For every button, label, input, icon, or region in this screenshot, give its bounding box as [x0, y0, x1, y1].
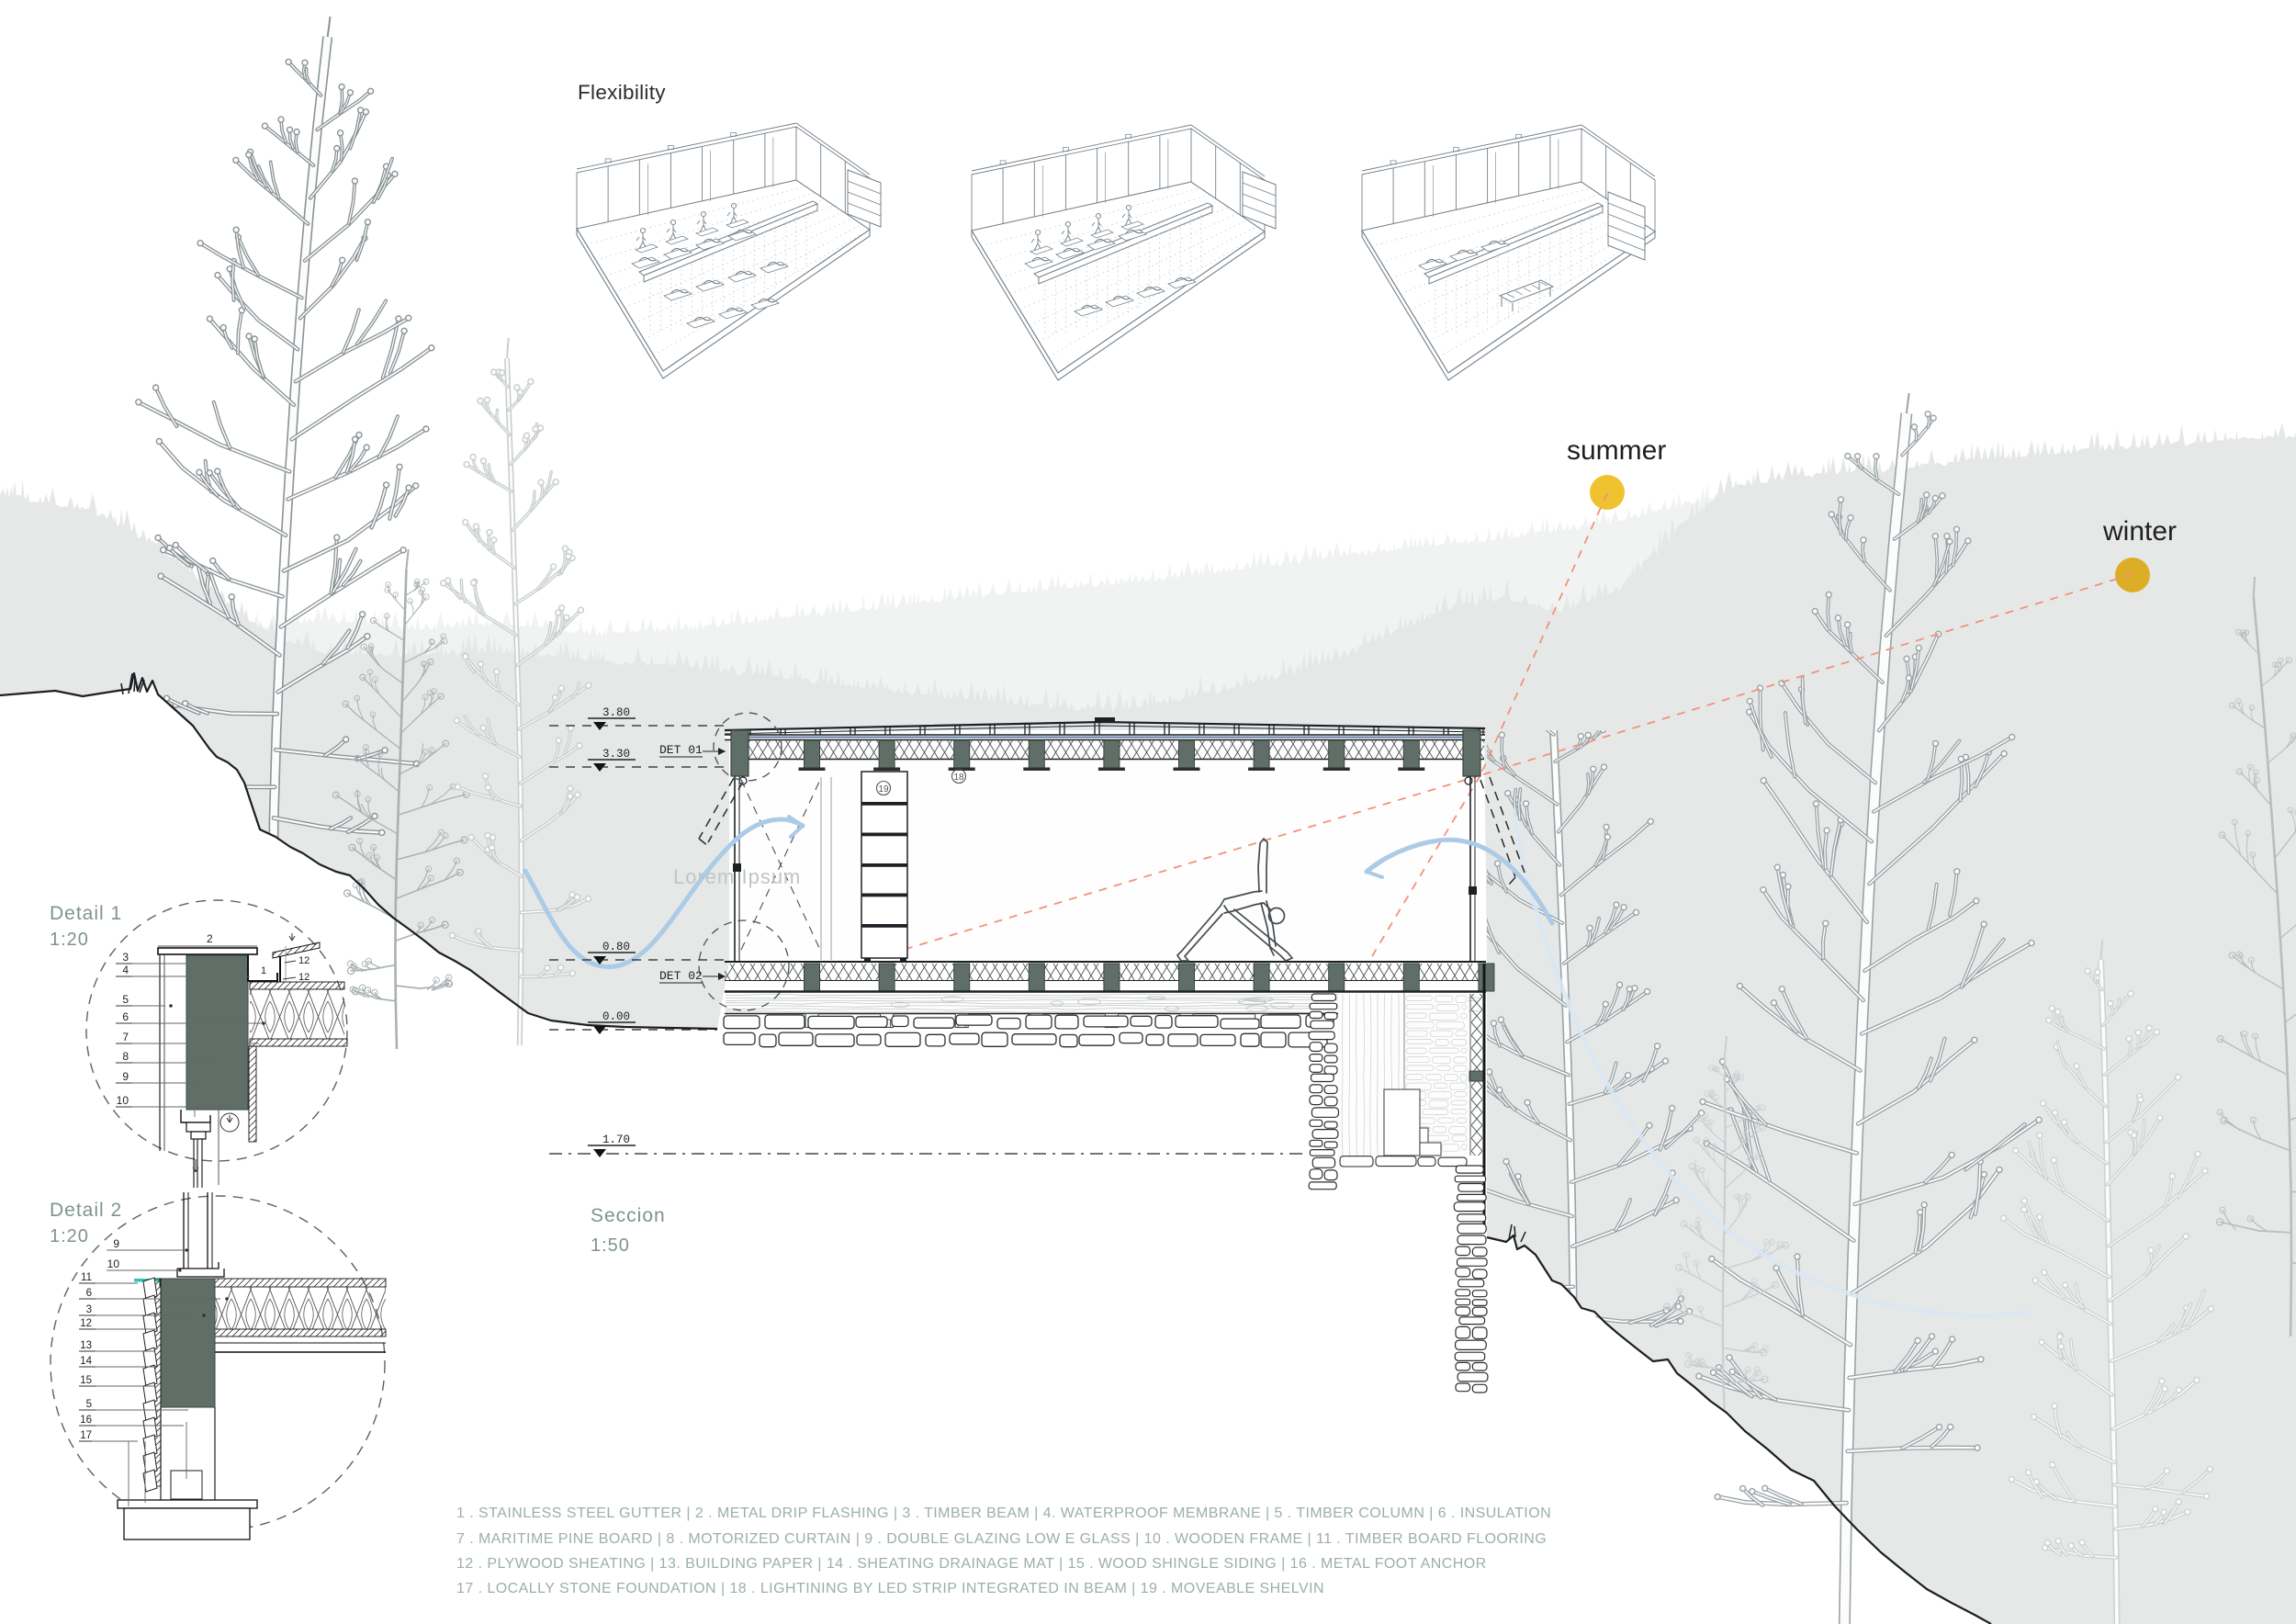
svg-text:5: 5 [86, 1399, 92, 1410]
svg-text:summer: summer [1567, 435, 1666, 466]
svg-text:12: 12 [298, 955, 310, 966]
svg-text:Flexibility: Flexibility [578, 81, 666, 104]
svg-text:Detail 2: Detail 2 [50, 1200, 122, 1221]
svg-text:0.00: 0.00 [602, 1010, 630, 1023]
svg-text:1 . STAINLESS STEEL GUTTER |: 1 . STAINLESS STEEL GUTTER | 2 . METAL D… [456, 1506, 1551, 1521]
svg-text:3.30: 3.30 [602, 748, 630, 761]
svg-text:10: 10 [117, 1094, 129, 1107]
svg-text:6: 6 [86, 1288, 92, 1299]
svg-text:3.80: 3.80 [602, 706, 630, 719]
svg-text:0.80: 0.80 [602, 941, 630, 953]
svg-text:13: 13 [80, 1340, 92, 1351]
svg-text:1:50: 1:50 [591, 1235, 630, 1256]
svg-text:19: 19 [878, 784, 889, 795]
svg-text:DET 01: DET 01 [659, 743, 703, 757]
svg-text:7: 7 [122, 1031, 129, 1043]
svg-text:12: 12 [80, 1318, 92, 1329]
svg-text:6: 6 [122, 1010, 129, 1023]
svg-text:3: 3 [122, 951, 129, 964]
svg-text:7 . MARITIME PINE BOARD | 8: 7 . MARITIME PINE BOARD | 8 . MOTORIZED … [456, 1531, 1547, 1547]
svg-text:14: 14 [80, 1356, 92, 1367]
svg-text:Lorem Ipsum: Lorem Ipsum [673, 865, 801, 888]
svg-text:winter: winter [2102, 516, 2177, 547]
svg-text:1:20: 1:20 [50, 1226, 89, 1246]
svg-text:1.70: 1.70 [602, 1133, 630, 1146]
svg-text:1:20: 1:20 [50, 930, 89, 950]
svg-text:5: 5 [122, 993, 129, 1006]
svg-text:Detail 1: Detail 1 [50, 903, 122, 924]
svg-text:2: 2 [207, 932, 213, 945]
svg-text:17 . LOCALLY STONE FOUNDATION: 17 . LOCALLY STONE FOUNDATION | 18 . LIG… [456, 1581, 1324, 1596]
svg-text:12: 12 [298, 972, 310, 983]
svg-text:DET 02: DET 02 [659, 969, 703, 983]
svg-text:3: 3 [86, 1304, 92, 1315]
svg-text:9: 9 [122, 1070, 129, 1083]
svg-text:11: 11 [81, 1272, 92, 1283]
svg-text:4: 4 [122, 964, 129, 976]
svg-text:18: 18 [953, 773, 964, 783]
svg-text:8: 8 [122, 1050, 129, 1063]
svg-text:10: 10 [107, 1257, 120, 1270]
svg-text:9: 9 [113, 1237, 119, 1250]
svg-text:17: 17 [80, 1430, 92, 1441]
svg-text:1: 1 [261, 965, 266, 976]
svg-text:16: 16 [80, 1415, 92, 1426]
svg-text:15: 15 [80, 1375, 92, 1386]
svg-text:12 . PLYWOOD SHEATING | 13.: 12 . PLYWOOD SHEATING | 13. BUILDING PAP… [456, 1556, 1487, 1572]
svg-text:Seccion: Seccion [591, 1205, 666, 1226]
